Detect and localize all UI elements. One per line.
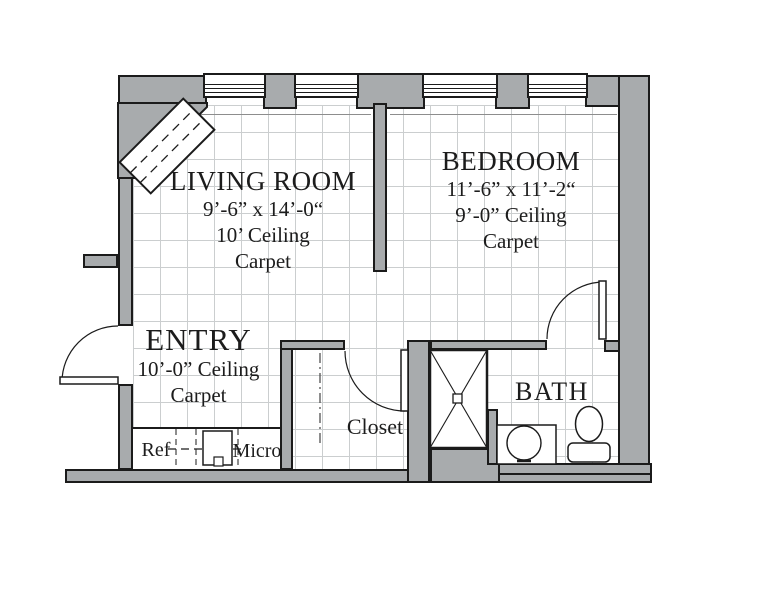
wall-left-stub	[83, 254, 118, 268]
entry-floor: Carpet	[111, 382, 286, 408]
entry-name: ENTRY	[111, 324, 286, 356]
living-room-floor: Carpet	[133, 248, 393, 274]
entry-door-panel	[60, 377, 118, 384]
entry-door-arc	[62, 326, 118, 382]
wall-bedroom-door-stub	[604, 340, 620, 352]
bedroom-label: BEDROOM 11’-6” x 11’-2“ 9’-0” Ceiling Ca…	[401, 146, 621, 254]
window-4	[527, 73, 588, 98]
closet-label: Closet	[323, 414, 427, 440]
bedroom-floor: Carpet	[401, 228, 621, 254]
wall-bath-south	[498, 463, 652, 475]
wall-pillar-1	[263, 73, 297, 109]
bedroom-bay-line	[390, 114, 617, 115]
living-bay-line	[136, 114, 371, 115]
wall-right	[618, 75, 650, 483]
wall-left-upper	[118, 172, 133, 326]
floor-plan: LIVING ROOM 9’-6” x 14’-0“ 10’ Ceiling C…	[0, 0, 758, 616]
wall-top-left-corner	[118, 75, 207, 107]
window-1	[203, 73, 266, 98]
bedroom-name: BEDROOM	[401, 146, 621, 176]
bedroom-ceiling: 9’-0” Ceiling	[401, 202, 621, 228]
living-room-dimensions: 9’-6” x 14’-0“	[133, 196, 393, 222]
living-room-label: LIVING ROOM 9’-6” x 14’-0“ 10’ Ceiling C…	[133, 166, 393, 274]
wall-closet-east	[407, 340, 430, 483]
entry-label: ENTRY 10’-0” Ceiling Carpet	[111, 324, 286, 408]
wall-bath-north	[430, 340, 547, 350]
bedroom-dimensions: 11’-6” x 11’-2“	[401, 176, 621, 202]
wall-divider-head	[356, 73, 425, 109]
entry-ceiling: 10’-0” Ceiling	[111, 356, 286, 382]
living-room-ceiling: 10’ Ceiling	[133, 222, 393, 248]
window-3	[422, 73, 498, 98]
wall-closet-north	[280, 340, 345, 350]
refrigerator-label: Ref	[136, 440, 176, 460]
living-room-name: LIVING ROOM	[133, 166, 393, 196]
window-2	[294, 73, 359, 98]
wall-pillar-2	[495, 73, 530, 109]
bath-label: BATH	[500, 379, 604, 405]
wall-shower-vanity-stub	[487, 409, 498, 465]
microwave-label: Micro	[228, 441, 286, 461]
